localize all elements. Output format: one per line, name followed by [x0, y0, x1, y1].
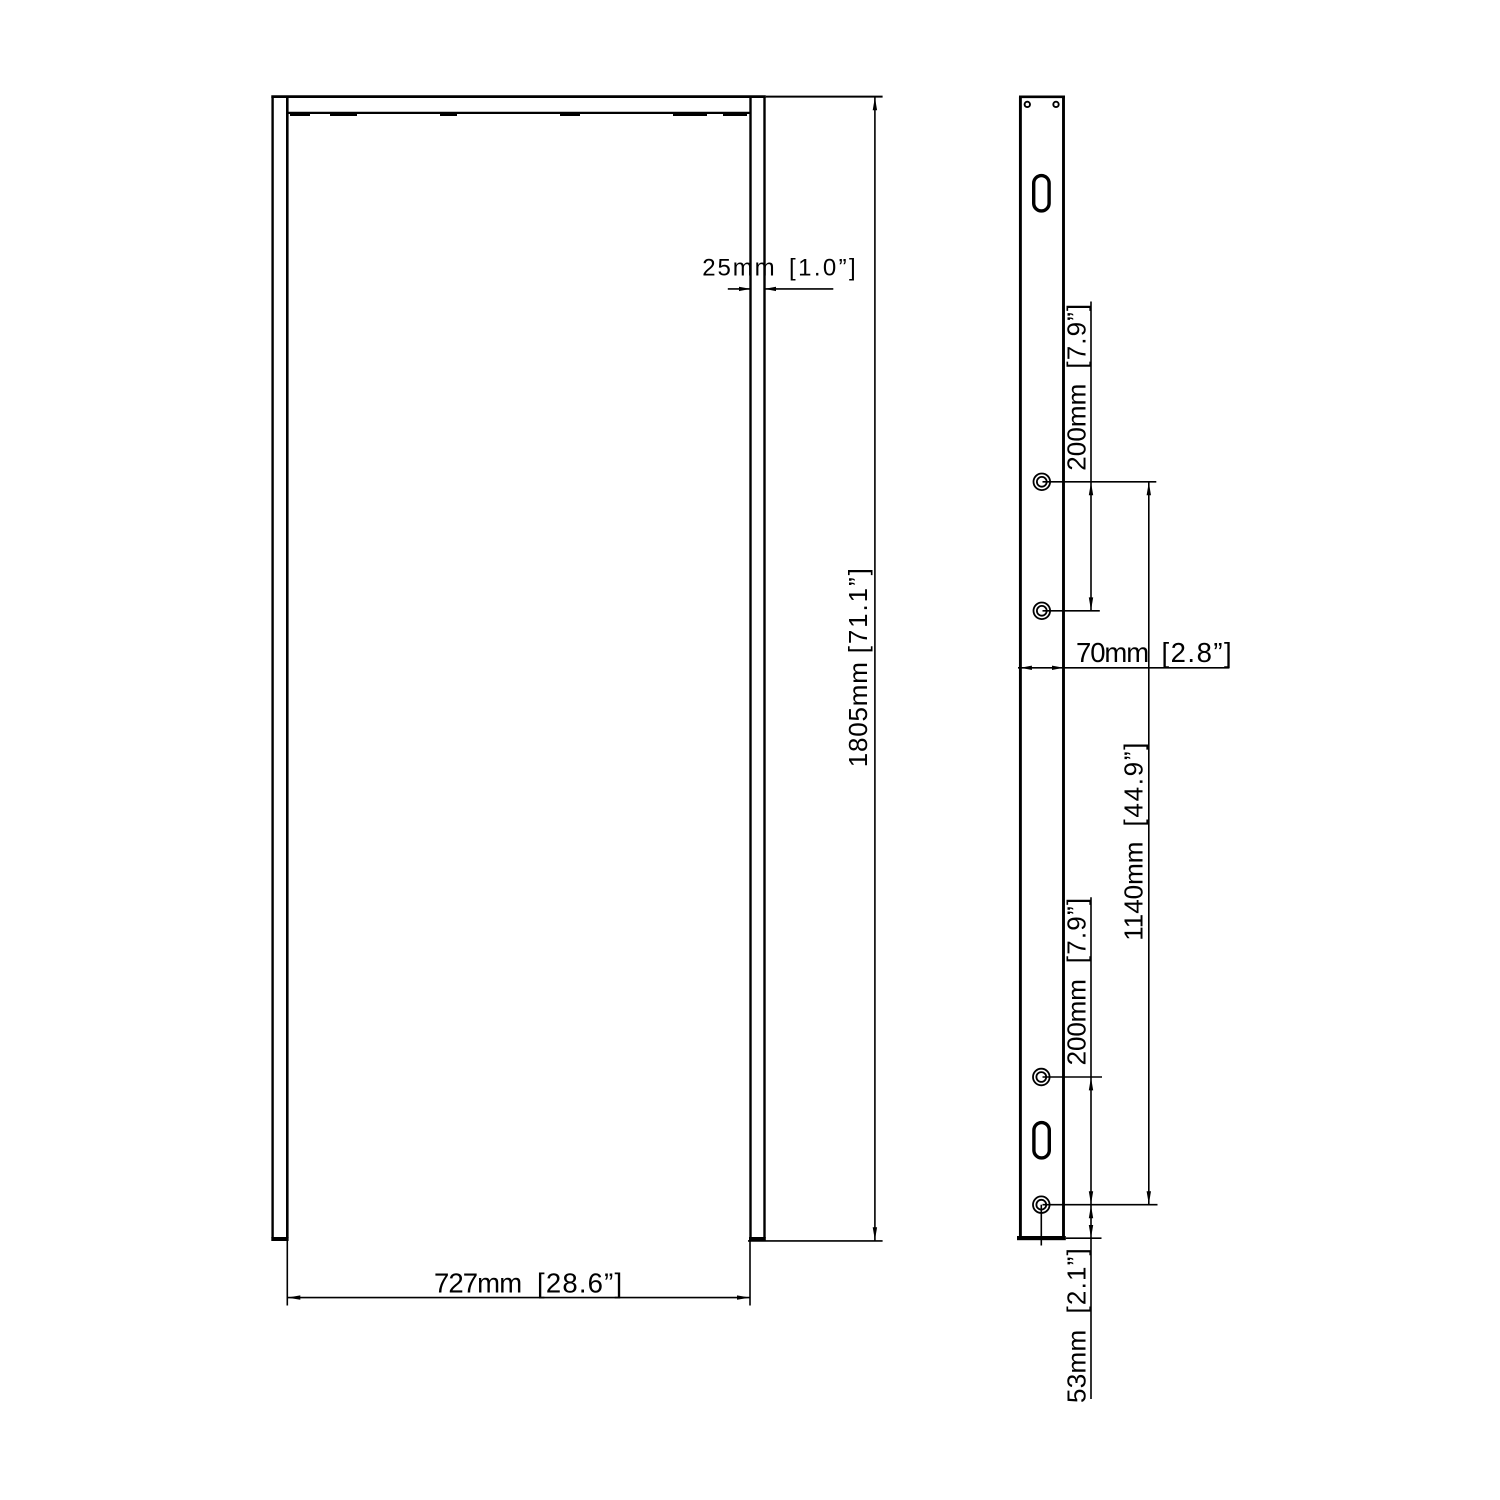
svg-text:200mm: 200mm — [1062, 979, 1092, 1065]
svg-text:200mm: 200mm — [1062, 384, 1092, 471]
svg-text:[7.9”]: [7.9”] — [1062, 897, 1092, 963]
svg-text:[2.1”]: [2.1”] — [1062, 1247, 1092, 1313]
svg-text:25mm: 25mm — [702, 254, 776, 281]
svg-text:[71.1”]: [71.1”] — [843, 566, 873, 653]
svg-text:[2.8”]: [2.8”] — [1162, 637, 1234, 668]
svg-text:53mm: 53mm — [1062, 1330, 1092, 1403]
svg-text:1805mm: 1805mm — [843, 661, 873, 767]
svg-text:70mm: 70mm — [1076, 637, 1148, 668]
svg-text:[28.6”]: [28.6”] — [537, 1268, 623, 1299]
svg-text:727mm: 727mm — [434, 1268, 521, 1299]
svg-text:[1.0”]: [1.0”] — [789, 254, 858, 281]
svg-text:[44.9”]: [44.9”] — [1118, 741, 1148, 827]
svg-text:1140mm: 1140mm — [1118, 842, 1148, 941]
svg-text:[7.9”]: [7.9”] — [1062, 303, 1092, 369]
